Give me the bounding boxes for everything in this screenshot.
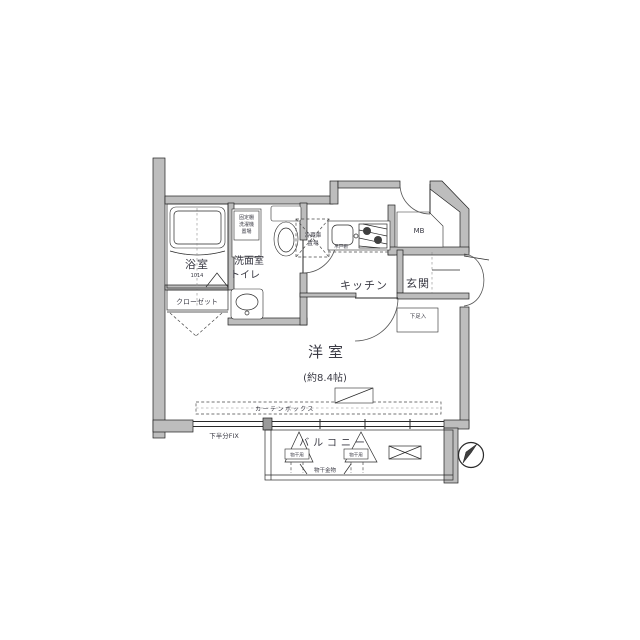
fridge-note-line2: 置場 (307, 239, 319, 247)
compass-icon (459, 443, 484, 468)
washbasin-vanity (231, 289, 263, 319)
bath-label: 浴室 (185, 257, 209, 271)
curtain-box-label: カーテンボックス (255, 405, 315, 413)
kitchen: 冷蔵庫 置場 吊戸棚 キッチン (296, 219, 390, 292)
floorplan-drawing: 浴室 1014 クローゼット 固定棚 洗濯機 置場 洗面室 トイレ 冷蔵庫 置場 (0, 0, 640, 640)
wall-hall-south (300, 293, 356, 297)
laundry-tag-left: 物干用 (290, 452, 304, 459)
washer-note-line1: 固定棚 (239, 214, 254, 221)
entrance-area: MB 玄関 下足入 (397, 184, 489, 332)
shoe-cabinet-label: 下足入 (410, 313, 427, 320)
shoe-cabinet (397, 308, 438, 332)
main-room-label: 洋室 (308, 343, 348, 361)
south-windows: 下半分FIX (193, 418, 444, 440)
hatch-box-cross (389, 446, 421, 459)
floorplan-page: 浴室 1014 クローゼット 固定棚 洗濯機 置場 洗面室 トイレ 冷蔵庫 置場 (0, 0, 640, 640)
meter-box-label: MB (414, 227, 425, 235)
closet: クローゼット (167, 290, 228, 336)
washroom: 固定棚 洗濯機 置場 洗面室 トイレ (230, 206, 336, 319)
bathtub (170, 207, 225, 248)
balcony: バルコニー 物干用 物干用 物干金物 (265, 430, 453, 480)
compass-circle (459, 443, 484, 468)
entrance-label: 玄関 (406, 276, 430, 290)
front-door-arc-top (400, 184, 430, 214)
wall-bath-closet (165, 285, 228, 290)
laundry-leader-right (344, 464, 351, 474)
hanging-cupboard-label: 吊戸棚 (334, 243, 348, 250)
window-pier (263, 418, 272, 430)
laundry-tag-right: 物干用 (349, 452, 363, 459)
room-door-arc (355, 298, 398, 341)
stove-burner-1 (363, 227, 371, 235)
wall-top-b (338, 181, 400, 188)
laundry-hardware-label: 物干金物 (314, 466, 337, 474)
stove-burner-2 (374, 236, 382, 244)
closet-label: クローゼット (176, 297, 218, 306)
wall-genkan-south (397, 293, 469, 299)
washer-note-line2: 洗濯機 (239, 221, 254, 228)
wall-bottomleft-stub (153, 420, 193, 432)
wall-washroom-east-lower (300, 273, 307, 325)
kitchen-label: キッチン (340, 279, 388, 292)
wall-genkan-west (397, 250, 403, 293)
washroom-label-line1: 洗面室 (234, 254, 264, 267)
balcony-label: バルコニー (299, 437, 369, 449)
toilet-bowl (274, 222, 298, 256)
laundry-leader-left (300, 464, 307, 474)
fix-window-label: 下半分FIX (209, 431, 239, 440)
washer-note-line3: 置場 (241, 228, 251, 235)
front-door-leaf-right (464, 256, 489, 260)
wall-top-step (330, 181, 338, 204)
bath-size-label: 1014 (191, 273, 204, 279)
closet-door-swing-dashes (170, 313, 222, 336)
wall-bottomright-corner (444, 420, 469, 429)
fridge-note-line1: 冷蔵庫 (305, 231, 322, 239)
bath-room: 浴室 1014 (167, 204, 228, 308)
wall-left (153, 158, 165, 438)
main-room-size-label: (約8.4帖) (303, 371, 347, 384)
bath-counter-curve (170, 251, 225, 255)
washroom-label-line2: トイレ (230, 270, 260, 281)
wall-right (460, 307, 469, 428)
wall-top-a (165, 196, 333, 204)
